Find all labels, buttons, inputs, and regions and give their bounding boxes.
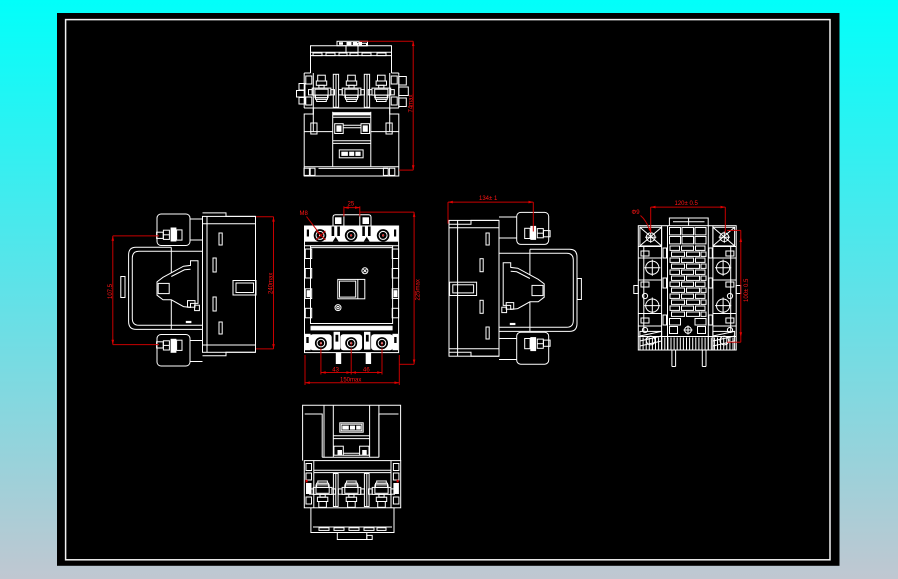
svg-text:M8: M8 <box>300 211 309 217</box>
svg-text:107.5: 107.5 <box>108 283 114 299</box>
svg-text:120± 0.5: 120± 0.5 <box>675 201 699 207</box>
svg-text:Φ9: Φ9 <box>632 210 641 216</box>
svg-text:43: 43 <box>332 368 339 374</box>
svg-text:100± 0.5: 100± 0.5 <box>744 278 750 302</box>
svg-text:46: 46 <box>363 368 370 374</box>
svg-text:240max: 240max <box>269 273 275 294</box>
svg-text:134± 1: 134± 1 <box>479 196 498 202</box>
svg-text:225max: 225max <box>416 279 422 300</box>
svg-text:25: 25 <box>348 202 355 208</box>
svg-text:150max: 150max <box>340 378 361 384</box>
svg-text:74max: 74max <box>408 94 414 112</box>
